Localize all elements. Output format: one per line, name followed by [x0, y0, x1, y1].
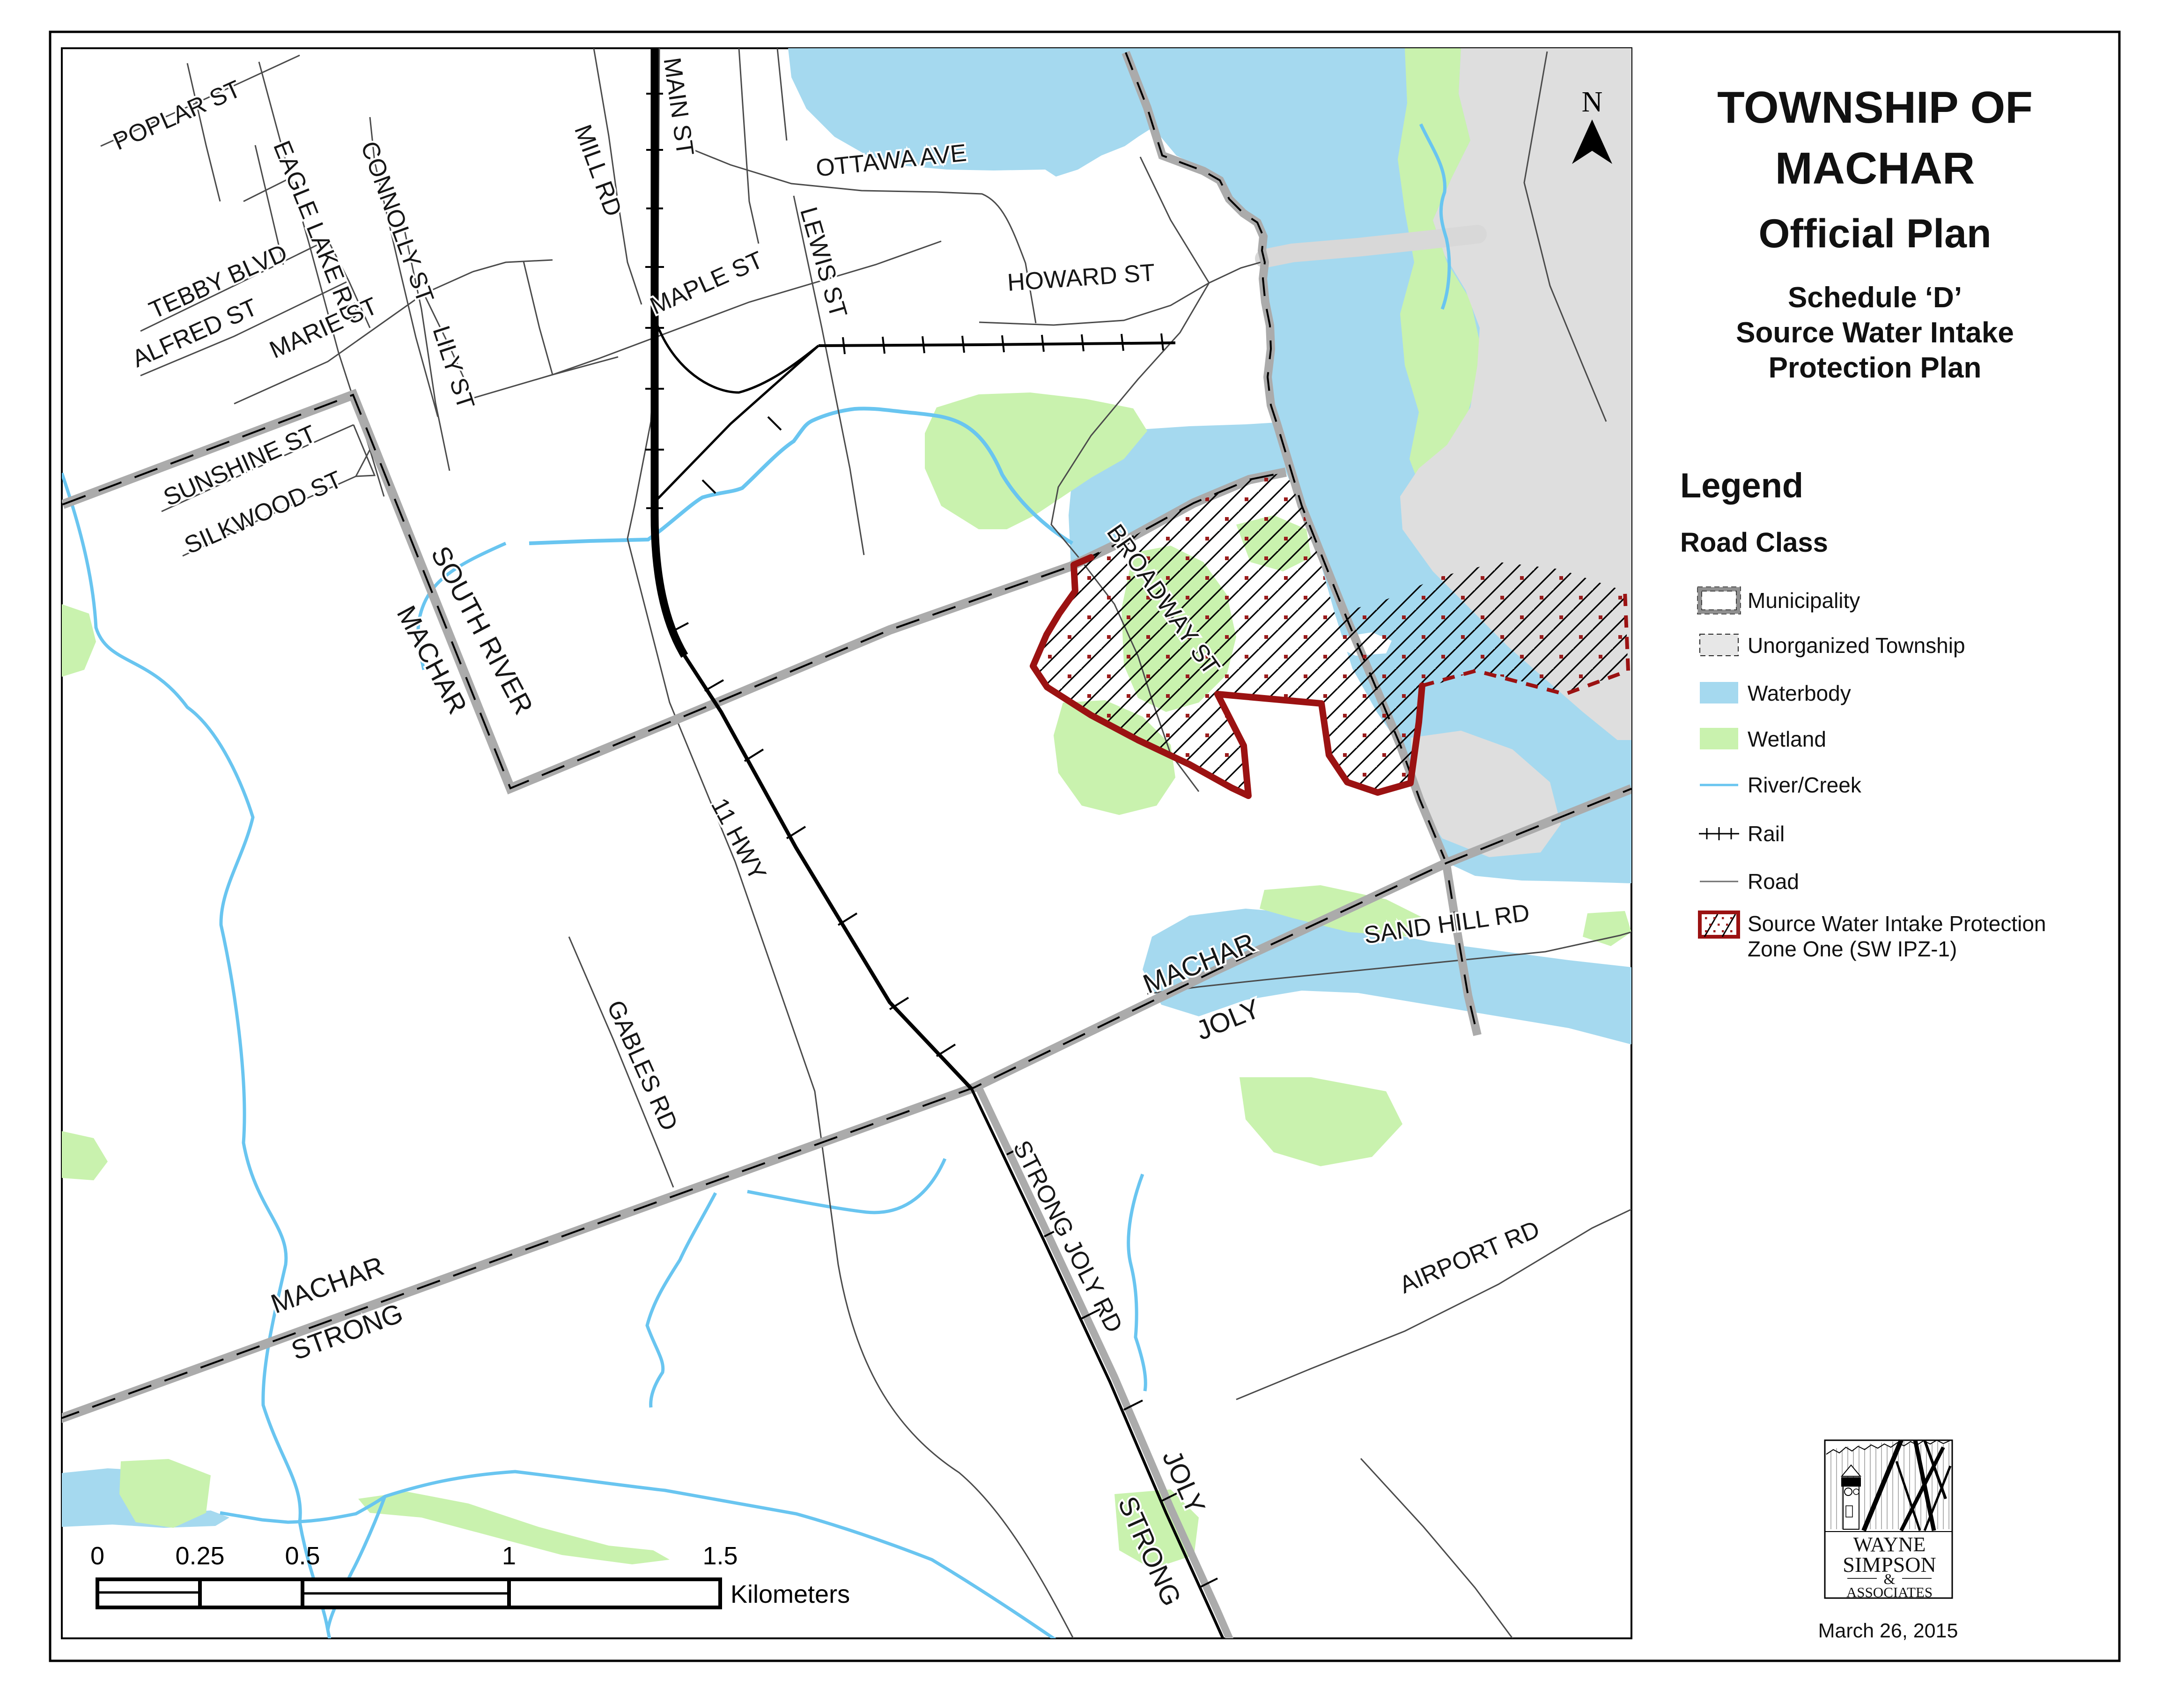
svg-text:Official Plan: Official Plan	[1758, 211, 1991, 256]
svg-text:0.25: 0.25	[175, 1542, 224, 1570]
svg-text:Rail: Rail	[1748, 822, 1785, 846]
svg-text:1.5: 1.5	[702, 1542, 738, 1570]
svg-text:March 26, 2015: March 26, 2015	[1818, 1620, 1958, 1642]
svg-text:Legend: Legend	[1680, 466, 1803, 505]
svg-text:N: N	[1582, 86, 1603, 118]
svg-text:Wetland: Wetland	[1748, 727, 1826, 751]
svg-text:0: 0	[90, 1542, 104, 1570]
svg-text:TOWNSHIP OF: TOWNSHIP OF	[1717, 82, 2033, 133]
svg-text:Source Water Intake: Source Water Intake	[1736, 317, 2014, 349]
svg-text:Municipality: Municipality	[1748, 588, 1860, 613]
svg-text:Protection Plan: Protection Plan	[1769, 352, 1982, 384]
svg-text:River/Creek: River/Creek	[1748, 773, 1862, 797]
svg-text:Kilometers: Kilometers	[730, 1580, 850, 1608]
svg-text:Road Class: Road Class	[1680, 527, 1828, 558]
svg-text:Source Water Intake Protection: Source Water Intake Protection	[1748, 911, 2046, 936]
svg-text:Unorganized Township: Unorganized Township	[1748, 633, 1965, 658]
svg-text:0.5: 0.5	[285, 1542, 320, 1570]
svg-text:MACHAR: MACHAR	[1775, 143, 1975, 193]
svg-text:Schedule ‘D’: Schedule ‘D’	[1788, 281, 1962, 314]
svg-text:Waterbody: Waterbody	[1748, 681, 1851, 705]
svg-text:ASSOCIATES: ASSOCIATES	[1846, 1584, 1933, 1600]
svg-text:Zone One (SW IPZ-1): Zone One (SW IPZ-1)	[1748, 937, 1957, 961]
svg-text:1: 1	[502, 1542, 516, 1570]
svg-text:Road: Road	[1748, 869, 1799, 894]
